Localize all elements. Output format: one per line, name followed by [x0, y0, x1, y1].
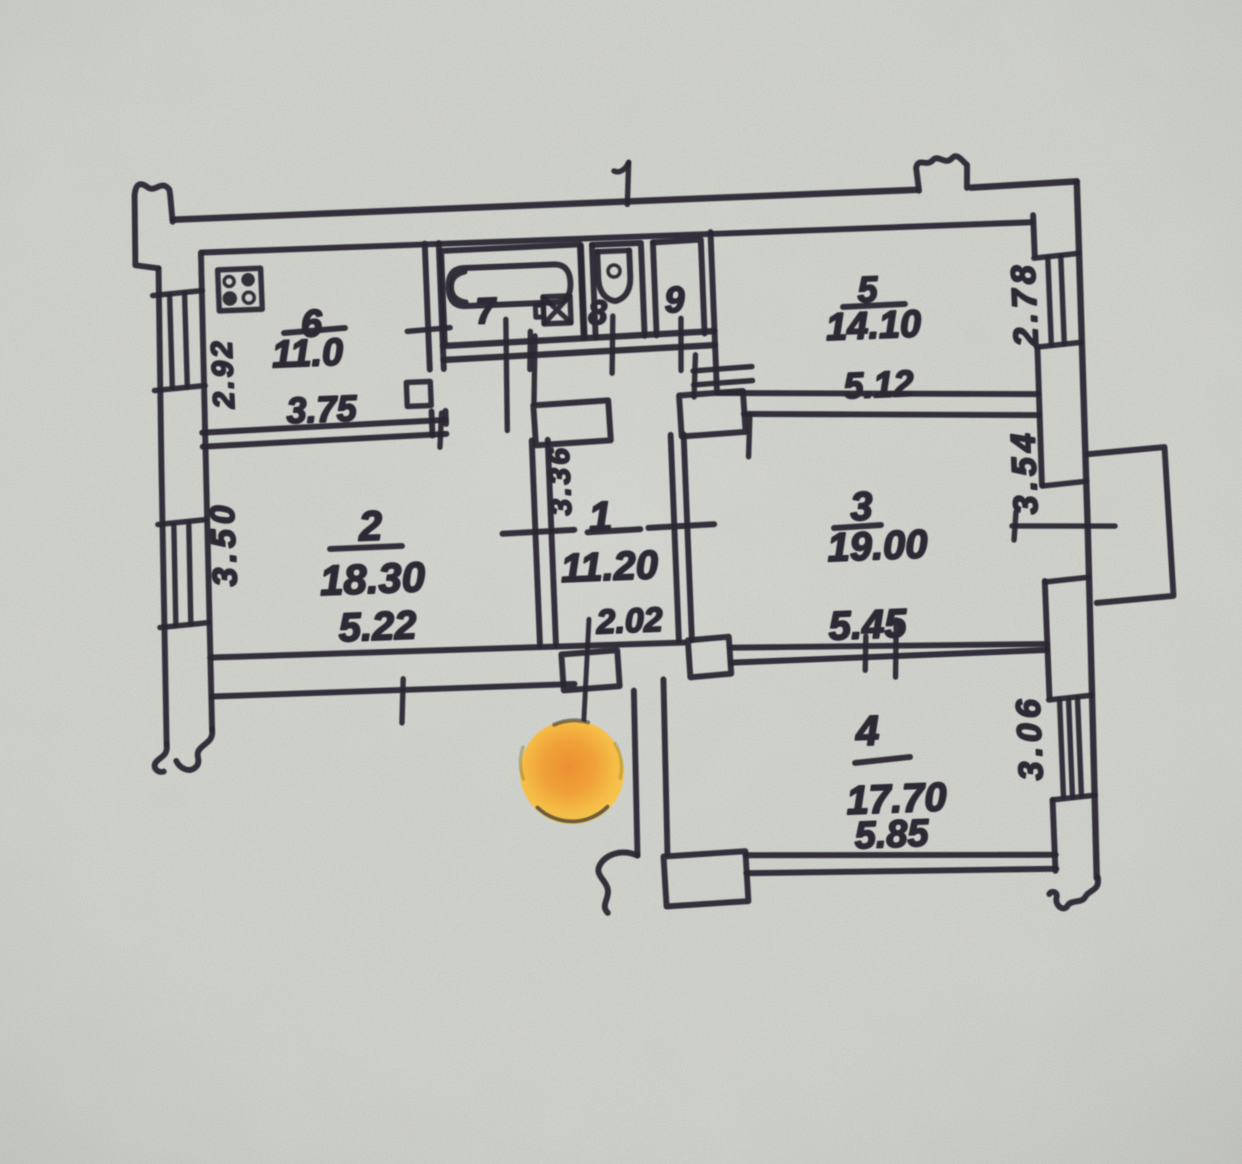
svg-text:3: 3 [849, 485, 873, 530]
svg-text:2: 2 [357, 502, 383, 550]
svg-text:7: 7 [475, 290, 499, 332]
svg-text:8: 8 [587, 294, 608, 333]
svg-text:11.20: 11.20 [560, 543, 659, 591]
svg-text:5.12: 5.12 [843, 363, 915, 407]
svg-text:2.02: 2.02 [595, 601, 664, 642]
svg-text:3.50: 3.50 [203, 500, 244, 588]
svg-text:2.92: 2.92 [206, 338, 242, 411]
svg-text:18.30: 18.30 [319, 553, 426, 604]
svg-text:3.06: 3.06 [1009, 694, 1050, 782]
svg-text:5.85: 5.85 [854, 813, 930, 858]
svg-text:19.00: 19.00 [827, 522, 929, 570]
svg-text:5.45: 5.45 [828, 601, 908, 648]
svg-text:14.10: 14.10 [825, 303, 922, 349]
svg-text:2.78: 2.78 [1004, 260, 1045, 349]
svg-text:1: 1 [588, 493, 613, 541]
svg-text:9: 9 [664, 279, 686, 321]
svg-text:3.54: 3.54 [1004, 428, 1045, 516]
svg-text:3.75: 3.75 [286, 388, 359, 432]
svg-text:4: 4 [854, 707, 880, 755]
svg-text:3.36: 3.36 [543, 445, 579, 517]
svg-text:11.0: 11.0 [271, 332, 344, 377]
svg-text:5.22: 5.22 [338, 603, 418, 650]
